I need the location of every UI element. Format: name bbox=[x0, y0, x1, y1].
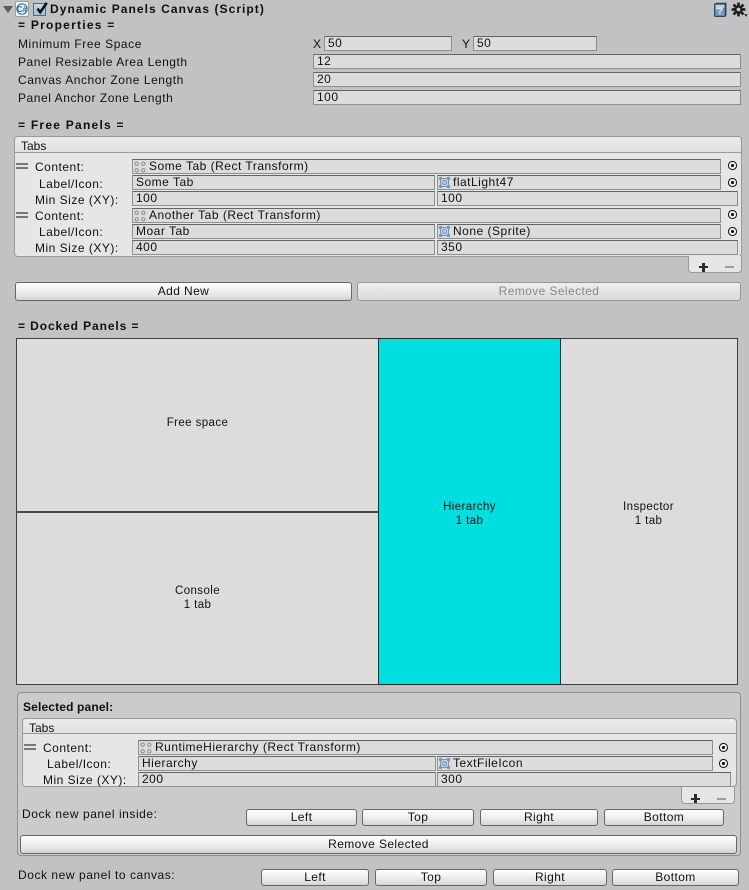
svg-text:?: ? bbox=[717, 6, 723, 16]
svg-text:C#: C# bbox=[17, 5, 28, 14]
